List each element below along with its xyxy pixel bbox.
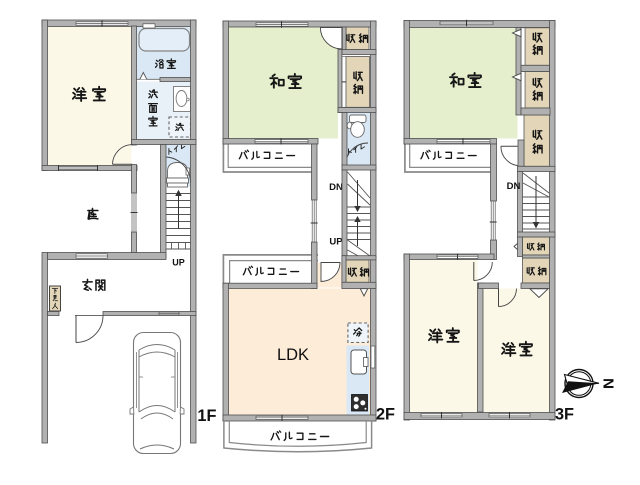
svg-text:UP: UP bbox=[329, 237, 343, 248]
svg-text:3F: 3F bbox=[555, 405, 574, 423]
svg-text:2F: 2F bbox=[376, 405, 395, 423]
svg-text:1F: 1F bbox=[197, 407, 216, 425]
svg-text:LDK: LDK bbox=[277, 346, 309, 364]
svg-text:N: N bbox=[600, 378, 617, 389]
svg-text:DN: DN bbox=[507, 181, 521, 192]
svg-text:DN: DN bbox=[329, 182, 343, 193]
svg-text:UP: UP bbox=[172, 258, 185, 268]
